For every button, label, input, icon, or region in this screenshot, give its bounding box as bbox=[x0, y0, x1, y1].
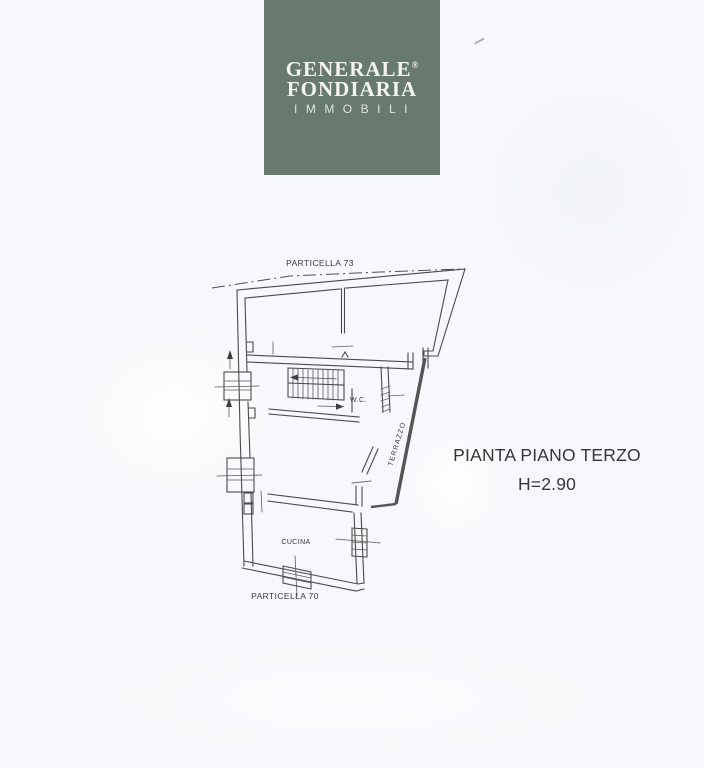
exterior-walls bbox=[237, 269, 465, 566]
wc-label: W.C. bbox=[350, 397, 367, 404]
plan-title: PIANTA PIANO TERZO bbox=[440, 441, 654, 470]
stair-direction-arrow bbox=[290, 374, 298, 380]
kitchen-label: CUCINA bbox=[281, 539, 310, 546]
kitchen-walls bbox=[242, 486, 380, 596]
interior-partitions bbox=[273, 288, 353, 354]
parcel-73-label: PARTICELLA 73 bbox=[286, 258, 354, 268]
floor-plan-drawing: PARTICELLA 73 PARTICELLA 70 W.C. CUCINA … bbox=[0, 0, 704, 768]
staircase bbox=[288, 368, 344, 410]
wc-door-arrow bbox=[336, 403, 344, 409]
plan-caption: PIANTA PIANO TERZO H=2.90 bbox=[440, 441, 654, 499]
wc-room bbox=[352, 367, 404, 412]
parcel-70-label: PARTICELLA 70 bbox=[251, 591, 319, 601]
parcel-boundary-line bbox=[212, 269, 462, 288]
scanned-document-page: GENERALE® FONDIARIA IMMOBILI bbox=[0, 0, 704, 768]
middle-room-walls bbox=[352, 447, 378, 483]
plan-height-note: H=2.90 bbox=[440, 470, 654, 499]
